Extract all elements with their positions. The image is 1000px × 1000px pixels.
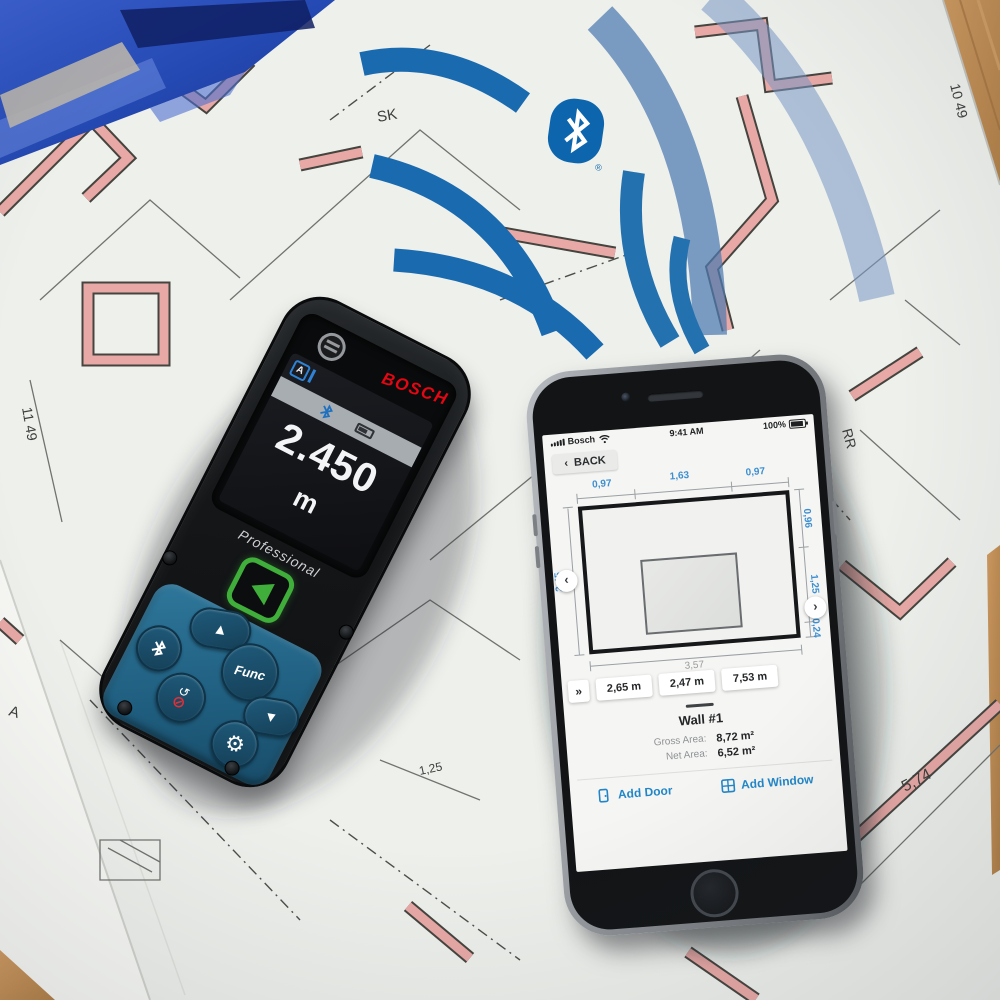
down-triangle-icon: ▼	[263, 708, 279, 726]
measurement-chip[interactable]: 2,47 m	[658, 670, 716, 696]
dim-right-middle: 1,25	[808, 574, 820, 594]
door-icon	[598, 788, 612, 803]
phone-screen: Bosch 9:41 AM 100% ‹ BACK	[542, 414, 848, 872]
add-door-button[interactable]: Add Door	[598, 783, 673, 803]
wall-diagram: 0,97 1,63 0,97 2,45 0,96 1,25 0,24 3,57 …	[545, 454, 832, 680]
back-button-label: BACK	[574, 454, 607, 468]
actions-row: Add Door Add Window	[569, 760, 843, 815]
dim-top-left: 0,97	[592, 478, 612, 490]
clock-label: 9:41 AM	[669, 426, 704, 439]
add-door-label: Add Door	[617, 783, 673, 801]
gear-icon: ⚙	[220, 728, 249, 760]
back-chevron-icon: ‹	[564, 457, 569, 469]
annotation-sk: SK	[376, 106, 399, 126]
battery-percent-label: 100%	[763, 419, 787, 431]
next-arrow-icon: ›	[813, 598, 819, 613]
dim-top-right: 0,97	[745, 466, 765, 478]
prev-arrow-icon: ‹	[564, 572, 570, 587]
dim-right-bottom: 0,24	[810, 618, 822, 638]
product-photo-scene: RR SK 10 49 11 49 RR 5,74 80 IL. 1,25 A	[0, 0, 1000, 1000]
continue-measure-button[interactable]: »	[567, 679, 589, 703]
window-outline[interactable]	[640, 552, 743, 634]
sheet-handle[interactable]	[686, 703, 714, 708]
measurement-chip[interactable]: 2,65 m	[595, 675, 653, 701]
dim-top-center: 1,63	[669, 470, 689, 482]
display-battery-icon	[353, 422, 374, 440]
battery-icon	[789, 418, 807, 428]
bluetooth-button[interactable]	[128, 617, 190, 679]
display-bluetooth-icon	[316, 401, 336, 422]
measurement-chip[interactable]: 7,53 m	[721, 665, 779, 691]
bosch-emblem-icon	[313, 328, 351, 366]
dim-right-top: 0,96	[801, 508, 813, 528]
double-chevron-icon: »	[575, 684, 583, 698]
carrier-label: Bosch	[567, 434, 595, 446]
bluetooth-key-icon	[148, 637, 170, 660]
smartphone: Bosch 9:41 AM 100% ‹ BACK	[523, 351, 866, 939]
up-triangle-icon: ▲	[212, 620, 229, 639]
func-button-label: Func	[233, 662, 267, 684]
signal-bars-icon	[550, 438, 565, 446]
dim-bottom: 3,57	[684, 659, 704, 671]
add-window-label: Add Window	[741, 772, 814, 792]
power-back-button[interactable]: ↺ ⊘	[147, 664, 214, 731]
wifi-icon	[598, 434, 611, 444]
add-window-button[interactable]: Add Window	[721, 772, 814, 793]
measure-triangle-icon	[246, 575, 275, 605]
window-grid-icon	[721, 778, 736, 793]
